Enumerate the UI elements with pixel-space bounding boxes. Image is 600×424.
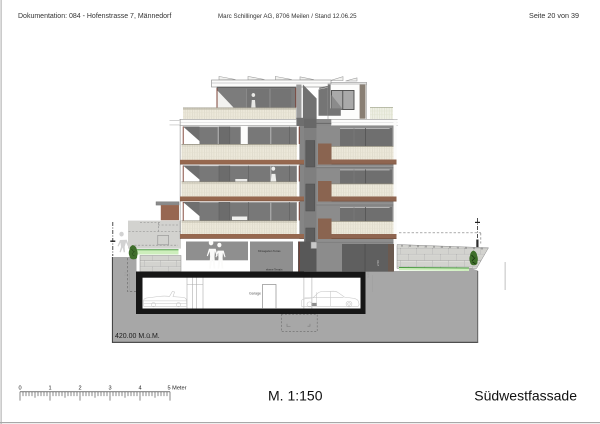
svg-text:Dokumentation: 084 - Hofenstra: Dokumentation: 084 - Hofenstrasse 7, Män… xyxy=(18,13,171,20)
svg-text:3: 3 xyxy=(108,386,111,392)
svg-text:0: 0 xyxy=(18,386,21,392)
svg-text:420.00 M.ü.M.: 420.00 M.ü.M. xyxy=(115,333,160,340)
svg-text:1: 1 xyxy=(48,386,51,392)
svg-text:Marc Schillinger AG, 8706 Meil: Marc Schillinger AG, 8706 Meilen / Stand… xyxy=(218,13,357,20)
svg-text:Seite 20 von 39: Seite 20 von 39 xyxy=(529,11,579,20)
svg-text:Südwestfassade: Südwestfassade xyxy=(474,388,577,404)
svg-text:2: 2 xyxy=(78,386,81,392)
svg-text:ebene Terrain: ebene Terrain xyxy=(266,267,283,271)
svg-text:2.50: 2.50 xyxy=(376,260,380,266)
svg-text:Garage: Garage xyxy=(249,292,261,296)
svg-text:Klimagarten Terras: Klimagarten Terras xyxy=(258,249,281,253)
svg-text:2.6: 2.6 xyxy=(124,271,128,276)
svg-text:M. 1:150: M. 1:150 xyxy=(268,388,323,404)
svg-text:5 Meter: 5 Meter xyxy=(168,386,187,392)
svg-text:4.20: 4.20 xyxy=(366,272,370,278)
svg-text:4: 4 xyxy=(138,386,141,392)
